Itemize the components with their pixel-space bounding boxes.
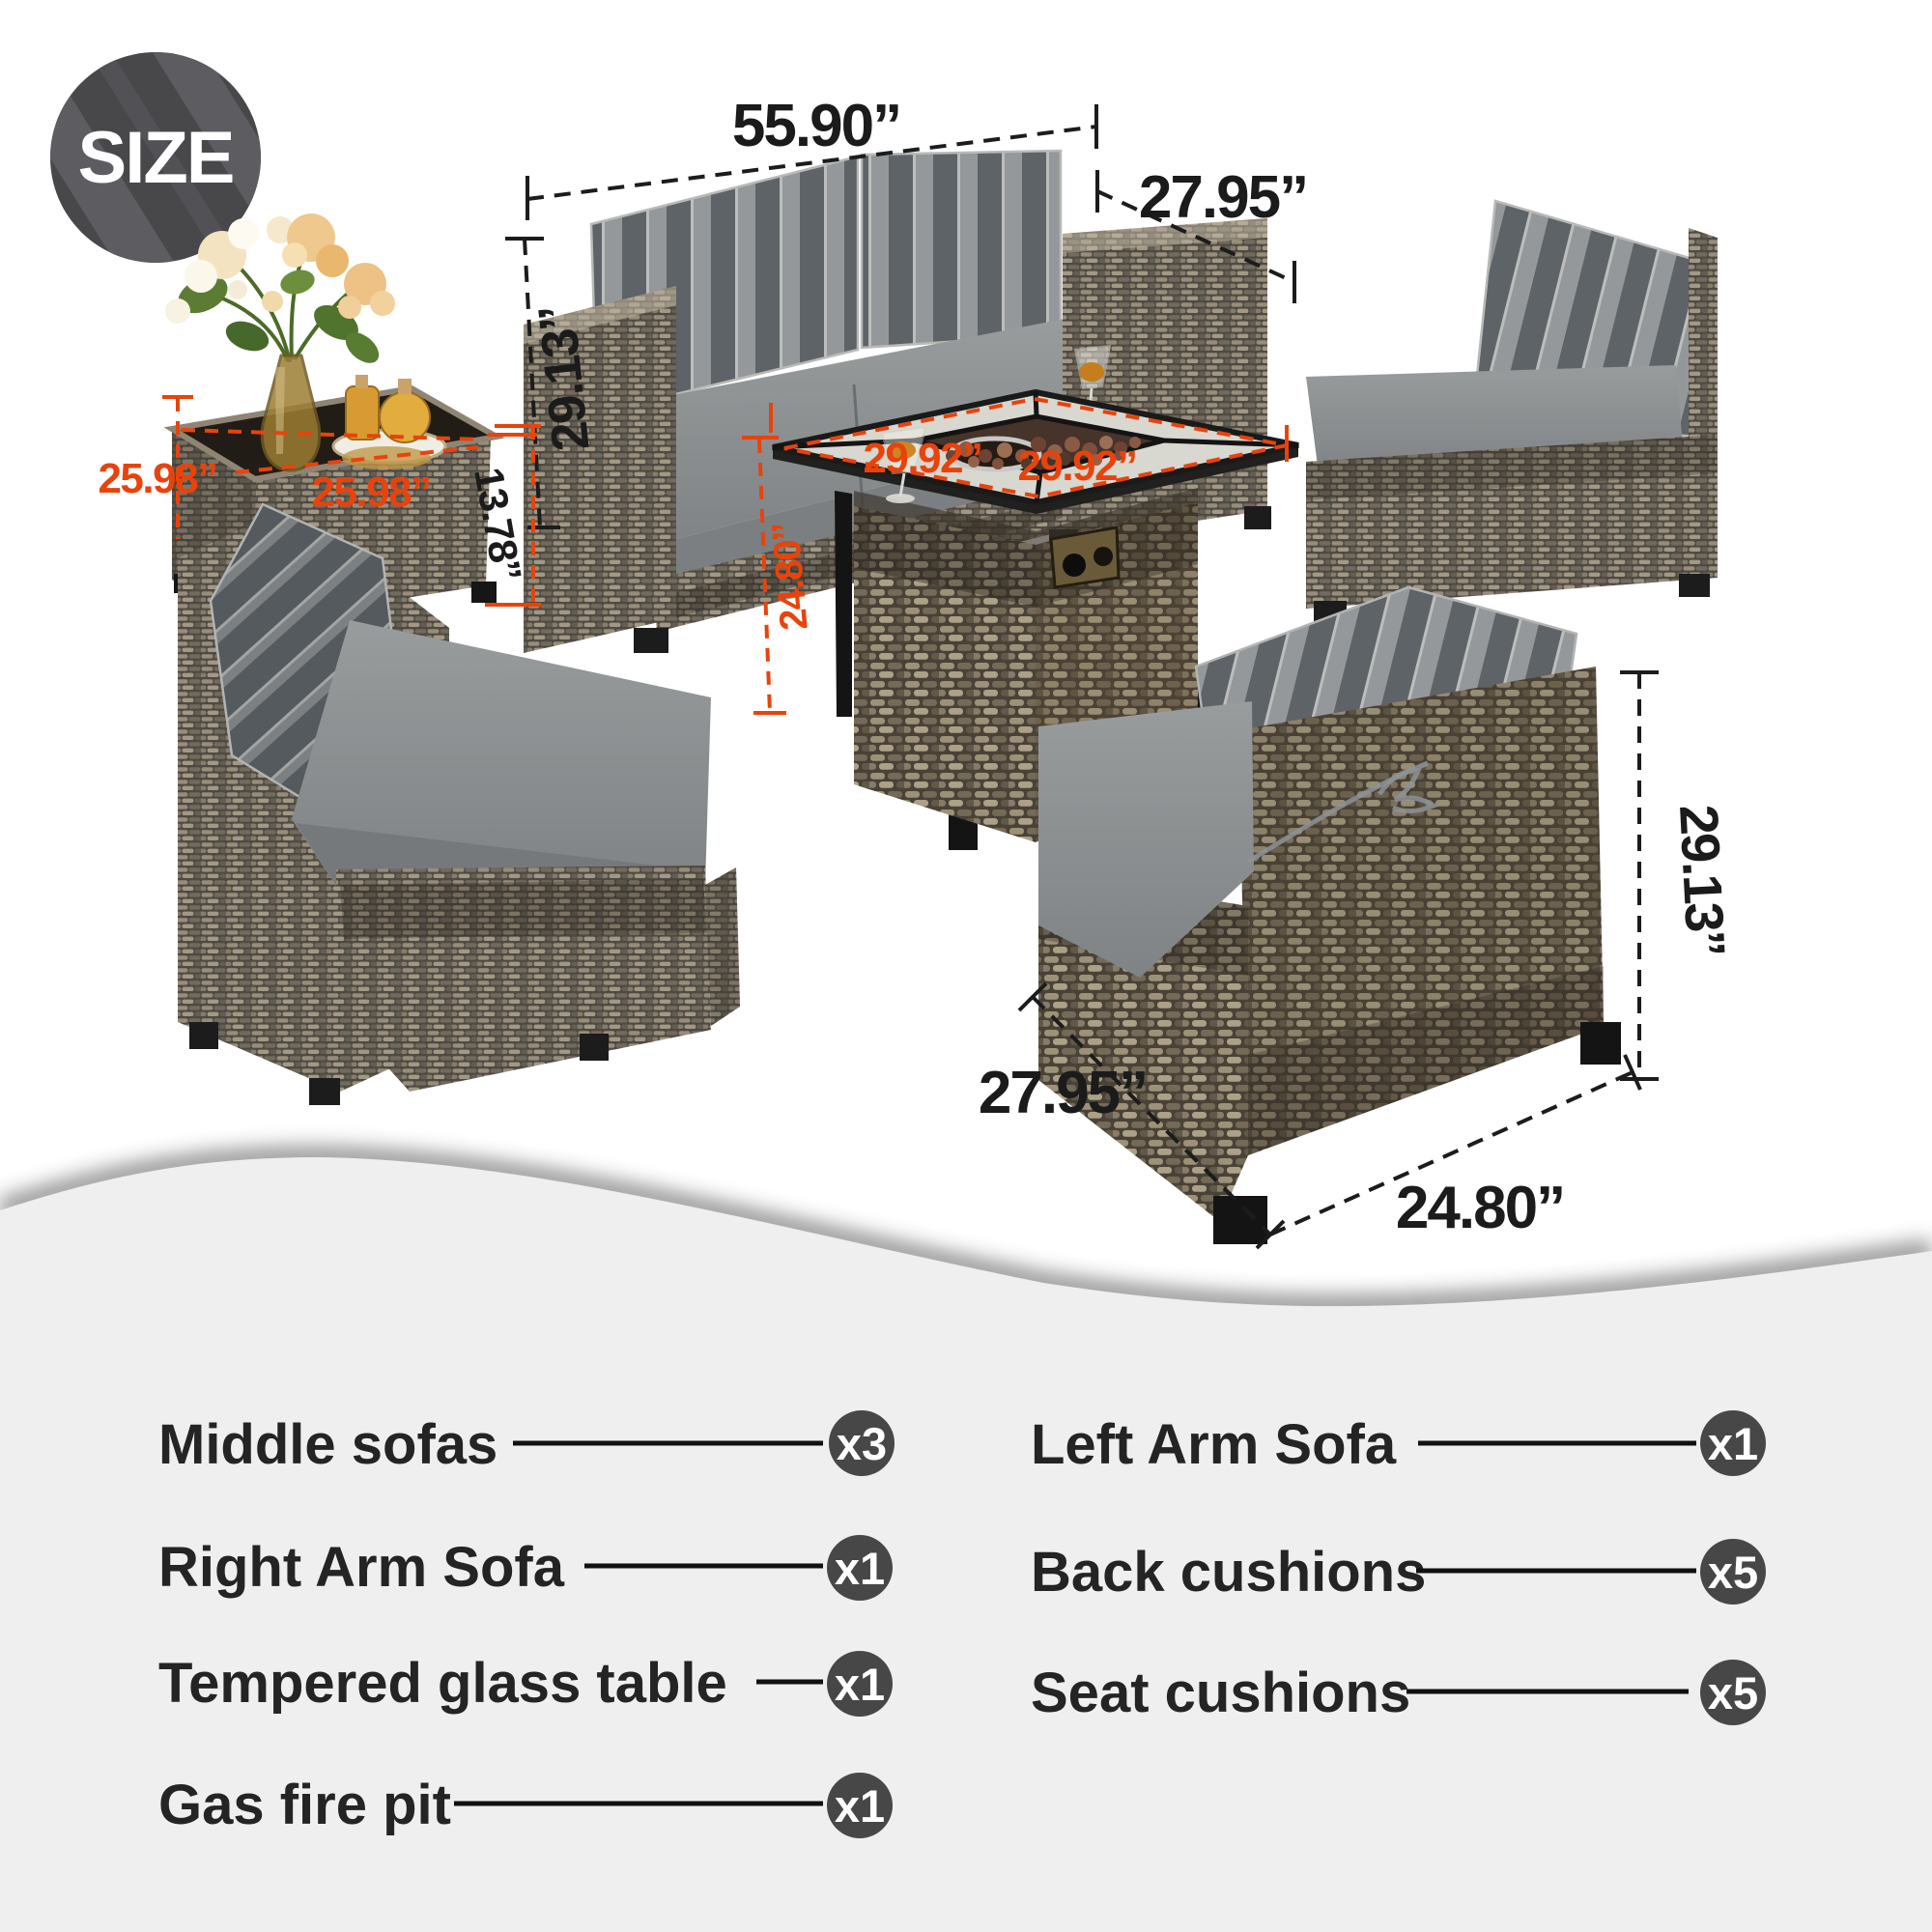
- svg-text:25.98”: 25.98”: [311, 469, 430, 516]
- svg-text:Right Arm Sofa: Right Arm Sofa: [158, 1536, 565, 1599]
- svg-text:Tempered glass table: Tempered glass table: [158, 1652, 727, 1715]
- svg-text:x5: x5: [1708, 1547, 1758, 1598]
- svg-text:29.13”: 29.13”: [1668, 803, 1737, 956]
- svg-text:x1: x1: [1708, 1418, 1758, 1469]
- svg-text:29.92”: 29.92”: [863, 435, 981, 482]
- svg-text:x5: x5: [1708, 1667, 1758, 1719]
- svg-text:Left Arm Sofa: Left Arm Sofa: [1031, 1413, 1397, 1476]
- svg-text:24.80”: 24.80”: [1396, 1175, 1564, 1241]
- svg-text:27.95”: 27.95”: [1139, 164, 1307, 231]
- svg-text:SIZE: SIZE: [78, 117, 234, 199]
- svg-text:x3: x3: [837, 1418, 887, 1469]
- svg-text:x1: x1: [835, 1543, 885, 1594]
- svg-text:x1: x1: [835, 1659, 885, 1710]
- svg-text:x1: x1: [835, 1780, 885, 1832]
- svg-text:25.98”: 25.98”: [98, 455, 216, 502]
- svg-text:Back cushions: Back cushions: [1031, 1541, 1426, 1604]
- svg-text:Gas fire pit: Gas fire pit: [158, 1774, 451, 1836]
- svg-text:Seat cushions: Seat cushions: [1031, 1662, 1410, 1724]
- svg-text:27.95”: 27.95”: [979, 1060, 1147, 1126]
- svg-text:29.92”: 29.92”: [1017, 442, 1136, 490]
- svg-text:Middle sofas: Middle sofas: [158, 1413, 497, 1476]
- svg-text:55.90”: 55.90”: [732, 93, 900, 159]
